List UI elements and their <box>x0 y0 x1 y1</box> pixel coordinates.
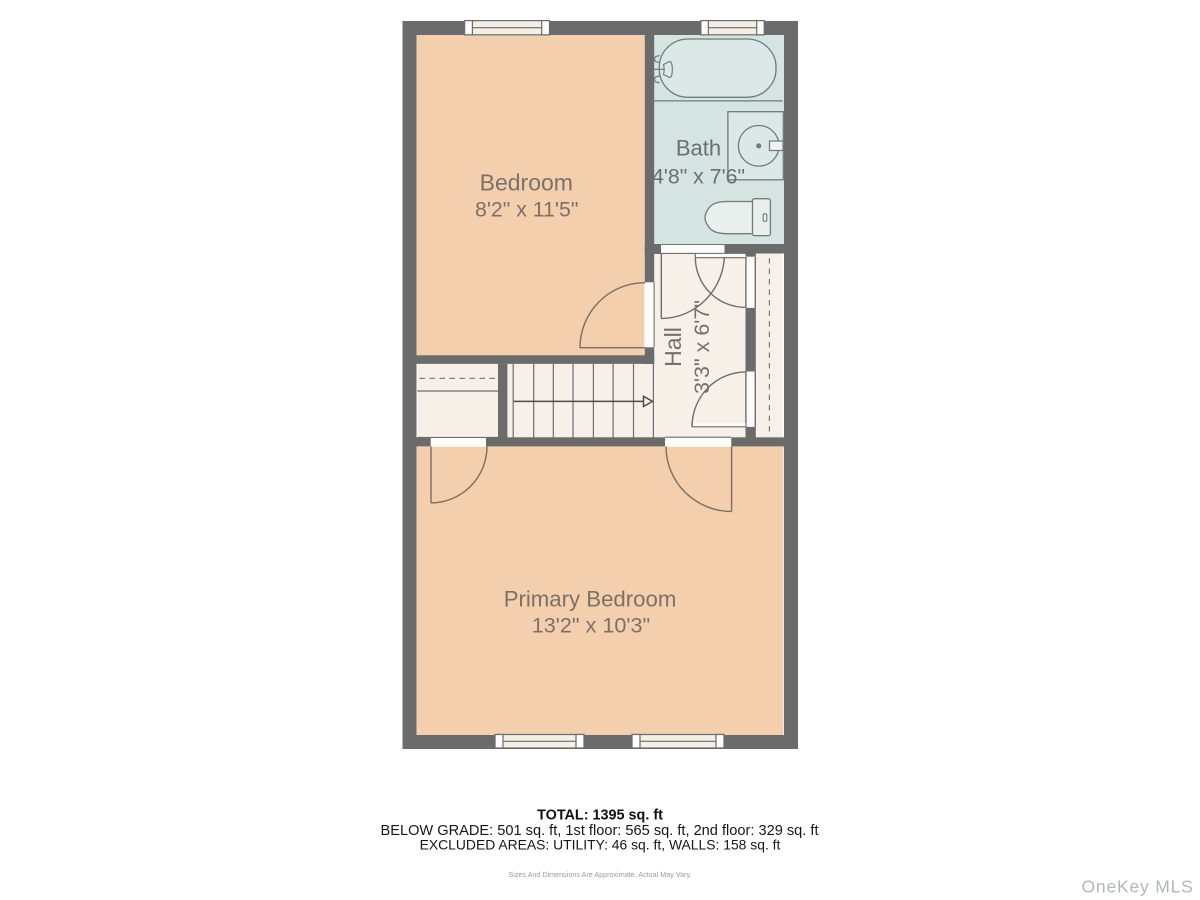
svg-text:Sizes And Dimensions Are Appro: Sizes And Dimensions Are Approximate. Ac… <box>508 870 691 879</box>
svg-text:Primary Bedroom: Primary Bedroom <box>504 587 677 612</box>
svg-text:TOTAL: 1395 sq. ft: TOTAL: 1395 sq. ft <box>537 808 663 824</box>
svg-text:3'3" x 6'7": 3'3" x 6'7" <box>690 300 714 394</box>
svg-text:EXCLUDED AREAS: UTILITY: 46 sq: EXCLUDED AREAS: UTILITY: 46 sq. ft, WALL… <box>420 837 781 853</box>
svg-text:Hall: Hall <box>660 327 686 367</box>
svg-text:4'8" x 7'6": 4'8" x 7'6" <box>652 164 745 188</box>
svg-text:Bedroom: Bedroom <box>480 170 573 196</box>
svg-text:Bath: Bath <box>676 135 721 160</box>
svg-text:OneKey MLS: OneKey MLS <box>1082 877 1194 897</box>
svg-text:13'2" x 10'3": 13'2" x 10'3" <box>532 613 650 638</box>
svg-text:8'2" x 11'5": 8'2" x 11'5" <box>475 197 578 221</box>
